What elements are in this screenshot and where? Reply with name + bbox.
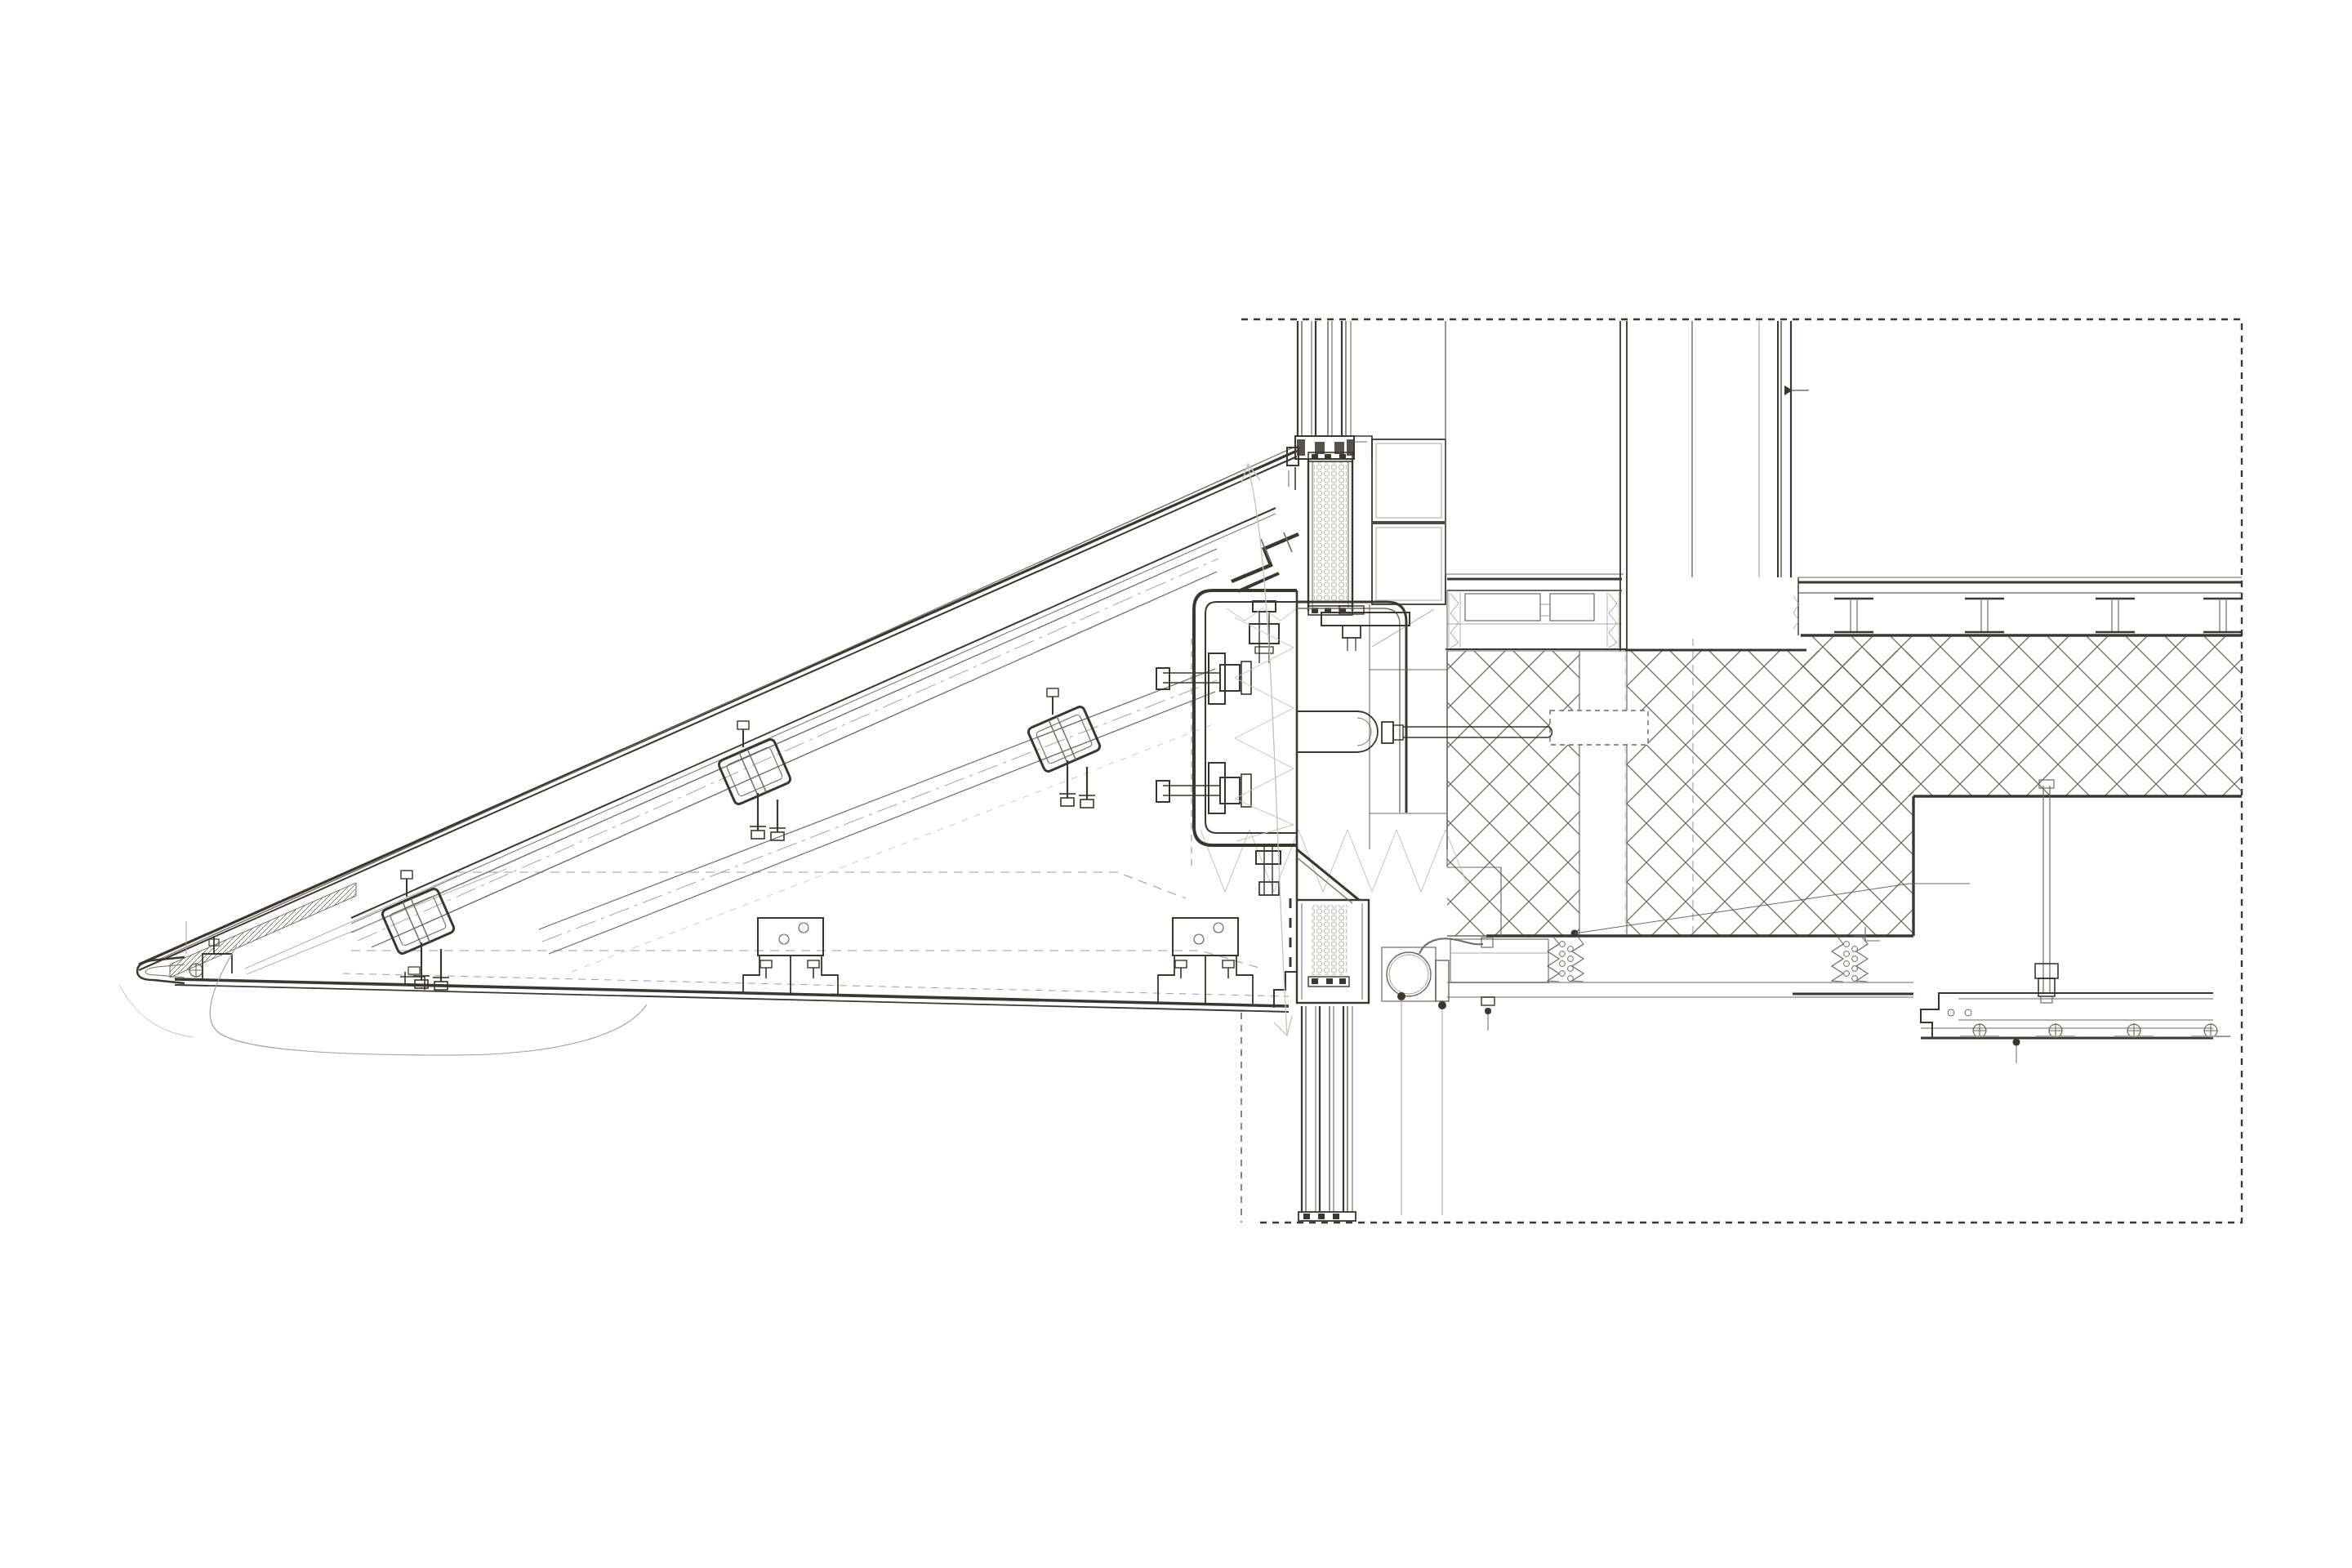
ceiling-strip-left [1447,927,1913,1031]
canopy-top-skin [139,446,1297,970]
drawing-canvas [0,0,2352,1568]
soffit-bracket [1158,918,1253,1004]
lower-glazing-unit [1302,1006,1352,1212]
ceiling-fasteners [1960,1024,2230,1037]
ceiling-panels [1921,993,2213,1063]
suspended-ceiling [1921,780,2230,1063]
slab-anchor-channel [1579,651,1627,936]
deck-profiles [1834,599,2243,632]
insulation-zigzag [1200,830,1467,892]
damper-unit [1382,938,1493,1215]
bracket-bolt [1156,774,1251,807]
bracket-bolt-vertical [1256,845,1281,895]
rafter-clamps [381,688,1101,990]
soffit-bracket [743,918,838,994]
drain-pipe [1419,938,1483,954]
lower-glazing-cap [1298,1212,1356,1221]
soffit-brackets [743,918,1253,1004]
below-slab-zone [1447,927,1913,1031]
spandrel-panels [1372,439,1445,604]
hanger-rod [2035,780,2058,1003]
break-curve [119,985,193,1037]
interior-wall-lines [1692,321,1809,577]
transom-fixing-plate [1321,606,1410,651]
anchor-channels [1548,937,1868,982]
slab-edge-transom [1445,574,1627,649]
inner-wall-face [1620,321,1627,651]
slotted-hole [1297,711,1378,752]
floor-build-up [1793,577,2242,635]
upper-glazing-cap [1295,436,1372,459]
embed-anchor-plate [1550,710,1648,745]
canopy-soffit [175,973,1289,1012]
architectural-section-drawing [0,0,2352,1568]
rafter-clamp [1027,688,1101,808]
glazing-toe-bracket [1232,448,1298,591]
bracket-bolt [1156,661,1251,694]
canopy-assembly [119,446,1467,1055]
leader-dot [2013,1039,2020,1046]
soffit-fold-line [457,872,1186,898]
canopy-rafter-upper [351,549,1218,947]
soffit-fold-line [351,951,1262,969]
mineral-core-infill [1312,462,1348,975]
upper-glazing-unit [1298,321,1351,436]
floor-slab [1447,635,2242,938]
canopy-rafter-lower [539,669,1217,972]
interior-wall-and-floor [1692,321,2243,635]
slab-hatch-right [1801,636,2242,796]
joint-closure-profile [1297,602,1406,813]
